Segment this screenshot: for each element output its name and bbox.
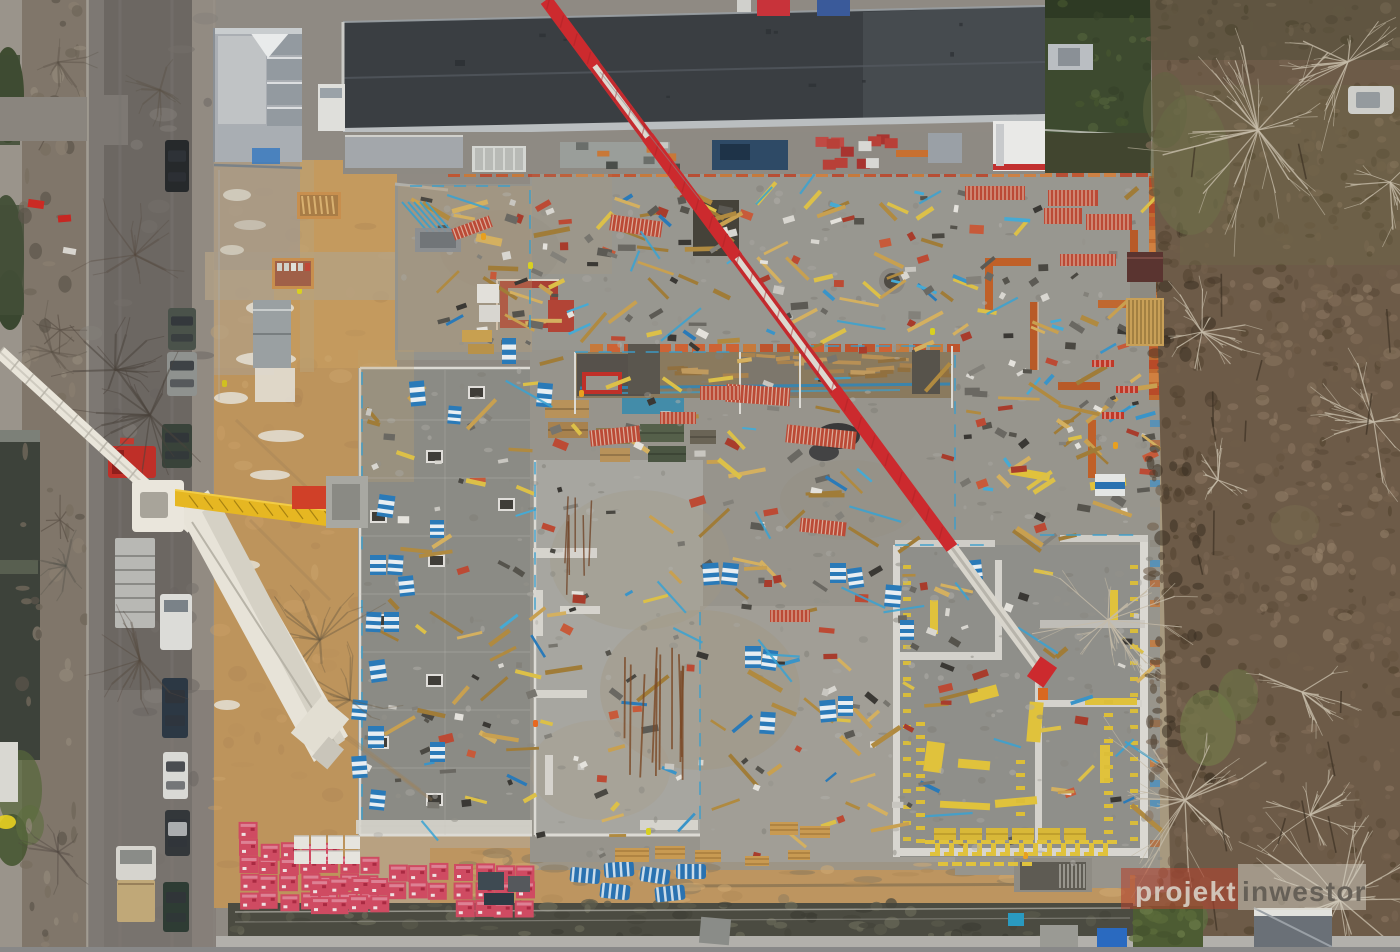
svg-text:projekt: projekt xyxy=(1135,876,1237,907)
svg-text:inwestor: inwestor xyxy=(1242,876,1367,907)
